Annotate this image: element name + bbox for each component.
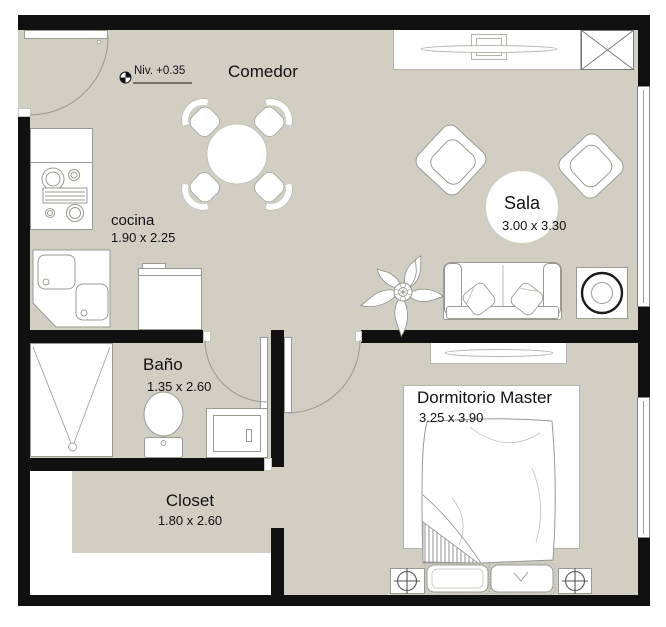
jamb-entry — [18, 108, 31, 117]
floor-void-left — [30, 467, 72, 595]
jamb-closet — [264, 458, 272, 471]
wall-top — [18, 15, 650, 30]
stove — [30, 162, 93, 230]
fridge — [138, 268, 202, 330]
toilet-tank — [144, 437, 183, 458]
room-label-bano: Baño — [143, 356, 183, 374]
room-label-sala: Sala — [486, 194, 558, 213]
room-dims-bano: 1.35 x 2.60 — [147, 380, 211, 394]
bathroom-sink — [213, 415, 261, 452]
speaker-table — [576, 267, 628, 319]
shower — [30, 343, 113, 457]
room-label-dormitorio: Dormitorio Master — [417, 389, 552, 407]
bedroom-dresser — [430, 342, 567, 364]
wall-right-middle — [638, 306, 650, 398]
jamb-bath-door — [203, 331, 211, 342]
window-bedroom — [637, 397, 650, 538]
wall-left — [18, 115, 30, 606]
fridge-door-line — [139, 275, 201, 276]
wall-bottom — [18, 595, 650, 606]
room-dims-sala: 3.00 x 3.30 — [502, 219, 566, 233]
nightstand-right — [558, 568, 592, 594]
wall-bathroom-top — [22, 330, 203, 343]
room-label-comedor: Comedor — [228, 63, 298, 81]
fridge-handle — [142, 263, 166, 269]
room-dims-cocina: 1.90 x 2.25 — [111, 231, 175, 245]
room-label-cocina: cocina — [111, 213, 154, 229]
window-sala — [637, 86, 650, 307]
jamb-bedroom-door — [355, 331, 362, 342]
room-dims-dormitorio: 3.25 x 3.90 — [419, 411, 483, 425]
floor-entry-strip — [18, 30, 30, 115]
floor-plan: Comedor Niv. +0.35 cocina 1.90 x 2.25 Sa… — [0, 0, 666, 627]
sink-faucet — [246, 429, 252, 442]
nightstand-left — [390, 568, 425, 594]
sofa-backrest — [446, 306, 559, 319]
entry-door-leaf — [24, 30, 108, 39]
tv-box-inner — [476, 38, 502, 56]
level-annotation: Niv. +0.35 — [134, 65, 185, 77]
duct-shaft-box — [581, 30, 634, 70]
bedroom-door-leaf — [284, 337, 292, 413]
wall-hall-vertical — [271, 330, 284, 467]
bathroom-door-leaf — [260, 337, 268, 409]
wall-sala-bedroom — [361, 330, 650, 343]
wall-right-lower — [638, 537, 650, 606]
room-label-closet: Closet — [120, 492, 260, 510]
wall-closet-stub — [271, 528, 284, 595]
room-dims-closet: 1.80 x 2.60 — [120, 514, 260, 528]
wall-bathroom-bottom — [22, 458, 264, 471]
wall-right-upper — [638, 15, 650, 88]
floor-void-bottom — [72, 553, 271, 595]
